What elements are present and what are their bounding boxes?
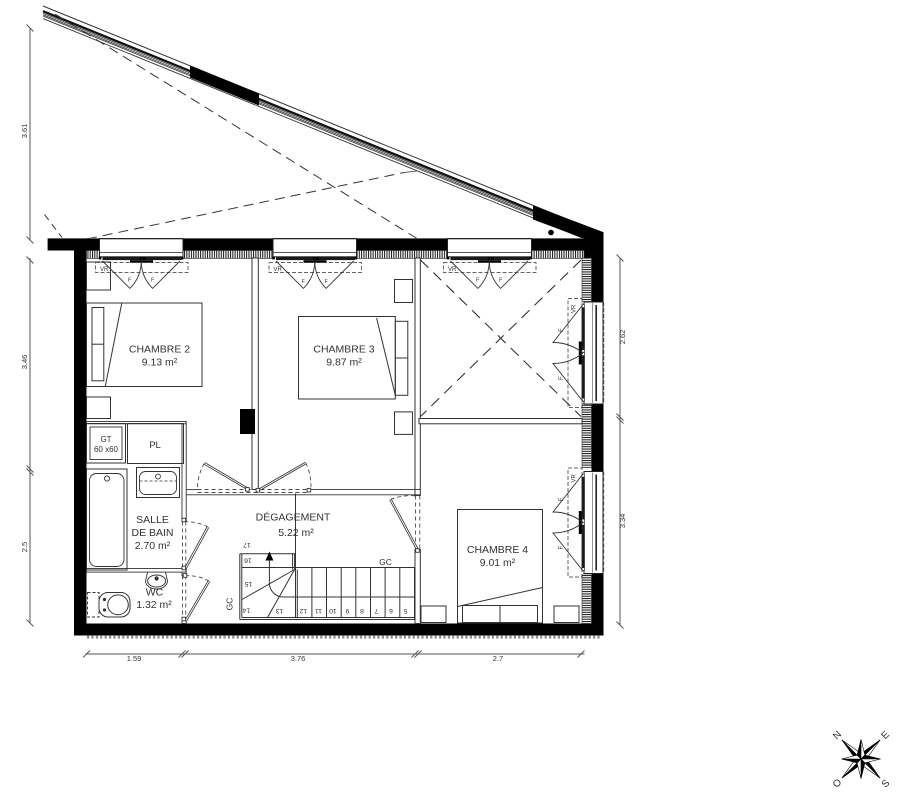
svg-text:12: 12 <box>300 607 308 614</box>
svg-text:VR: VR <box>448 267 457 273</box>
svg-text:9.13 m²: 9.13 m² <box>142 357 178 369</box>
svg-text:WC: WC <box>146 587 164 599</box>
svg-text:DE BAIN: DE BAIN <box>131 527 173 539</box>
svg-text:13: 13 <box>276 607 284 614</box>
svg-text:6: 6 <box>389 607 393 614</box>
svg-text:1.59: 1.59 <box>127 654 142 663</box>
svg-text:VR: VR <box>572 304 578 313</box>
svg-text:5.22 m²: 5.22 m² <box>278 527 314 539</box>
svg-text:VR: VR <box>100 267 109 273</box>
svg-text:3.61: 3.61 <box>20 124 29 139</box>
svg-text:VR: VR <box>274 267 283 273</box>
svg-text:PL: PL <box>149 440 161 451</box>
svg-text:3.34: 3.34 <box>618 514 627 529</box>
svg-text:CHAMBRE 4: CHAMBRE 4 <box>467 544 528 556</box>
svg-text:7: 7 <box>374 607 378 614</box>
svg-text:DÉGAGEMENT: DÉGAGEMENT <box>256 511 331 524</box>
svg-text:F: F <box>559 328 565 332</box>
svg-text:1.32 m²: 1.32 m² <box>136 599 172 611</box>
svg-text:9.01 m²: 9.01 m² <box>480 557 516 569</box>
svg-text:2.62: 2.62 <box>618 330 627 345</box>
svg-text:16: 16 <box>244 556 252 563</box>
svg-text:2.5: 2.5 <box>20 542 29 552</box>
svg-text:5: 5 <box>403 607 407 614</box>
svg-text:8: 8 <box>360 607 364 614</box>
svg-text:11: 11 <box>315 607 322 614</box>
svg-text:60 x60: 60 x60 <box>94 445 119 454</box>
svg-text:3.76: 3.76 <box>291 654 306 663</box>
svg-text:14: 14 <box>243 607 251 614</box>
svg-text:3.46: 3.46 <box>20 355 29 370</box>
svg-text:F: F <box>559 498 565 502</box>
svg-text:9.87 m²: 9.87 m² <box>326 357 362 369</box>
svg-text:F: F <box>559 376 565 380</box>
svg-text:2.70 m²: 2.70 m² <box>135 540 171 552</box>
svg-text:GC: GC <box>225 598 235 611</box>
svg-text:10: 10 <box>329 607 337 614</box>
svg-text:VR: VR <box>572 473 578 482</box>
svg-text:CHAMBRE 3: CHAMBRE 3 <box>313 344 374 356</box>
svg-text:17: 17 <box>243 541 251 548</box>
svg-text:9: 9 <box>345 607 349 614</box>
svg-text:GC: GC <box>379 557 392 567</box>
svg-text:15: 15 <box>245 580 253 587</box>
svg-text:GT: GT <box>100 435 111 444</box>
svg-text:SALLE: SALLE <box>136 514 169 526</box>
svg-text:F: F <box>559 546 565 550</box>
svg-text:2.7: 2.7 <box>493 654 503 663</box>
svg-text:CHAMBRE 2: CHAMBRE 2 <box>129 344 190 356</box>
